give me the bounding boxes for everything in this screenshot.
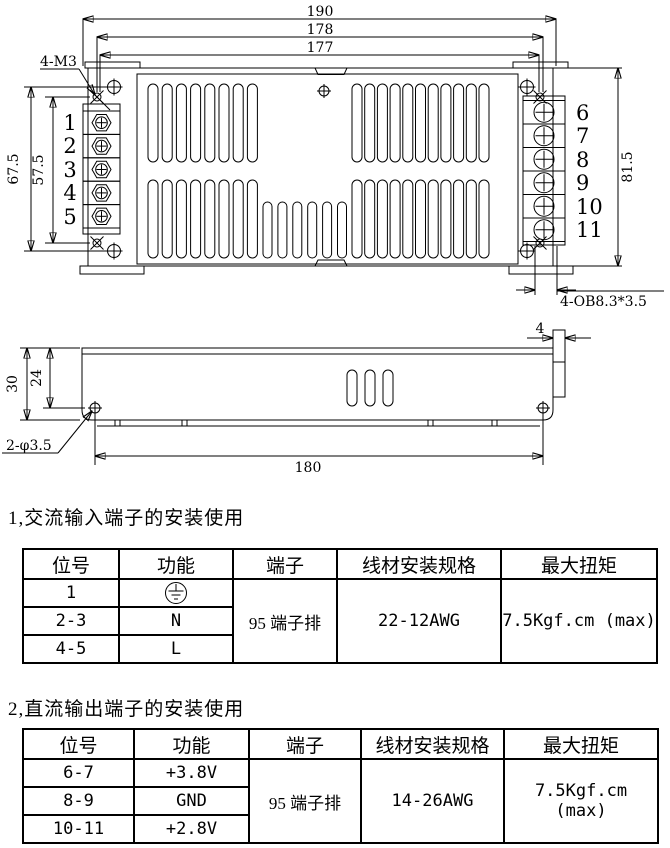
col-header-wire-spec: 线材安装规格 <box>337 549 501 579</box>
cell-function <box>119 579 233 607</box>
input-terminal-numbers: 1 2 3 4 5 <box>63 111 76 229</box>
dim-57-5: 57.5 <box>31 97 90 243</box>
col-header-torque: 最大扭矩 <box>501 549 657 579</box>
cell-position: 10-11 <box>23 815 134 843</box>
cell-position: 8-9 <box>23 787 134 815</box>
col-header-position: 位号 <box>23 549 119 579</box>
col-header-position: 位号 <box>23 729 134 759</box>
cover-screw <box>317 84 331 98</box>
cell-terminal-type: 95 端子排 <box>249 759 361 843</box>
table-row: 6-7 +3.8V 95 端子排 14-26AWG 7.5Kgf.cm (max… <box>23 759 658 787</box>
datasheet-page: 1 2 3 4 5 6 7 8 9 10 11 <box>0 0 670 848</box>
table-row: 1 95 端子排 22-12AWG 7.5Kgf.cm (max) <box>23 579 657 607</box>
vent-slots-top-left <box>148 84 257 162</box>
dc-output-table: 位号 功能 端子 线材安装规格 最大扭矩 6-7 +3.8V 95 端子排 14… <box>22 728 659 844</box>
svg-text:2: 2 <box>63 134 76 158</box>
svg-text:8: 8 <box>576 148 589 172</box>
col-header-function: 功能 <box>119 549 233 579</box>
svg-text:1: 1 <box>63 111 76 135</box>
input-terminal-block <box>83 104 120 234</box>
svg-text:180: 180 <box>295 460 322 476</box>
svg-text:10: 10 <box>576 195 603 219</box>
corner-screws <box>106 79 536 260</box>
svg-text:177: 177 <box>307 40 334 56</box>
svg-text:2-φ3.5: 2-φ3.5 <box>6 438 52 454</box>
cell-torque: 7.5Kgf.cm (max) <box>504 759 658 843</box>
svg-text:5: 5 <box>63 205 76 229</box>
svg-text:81.5: 81.5 <box>620 151 636 182</box>
table-header-row: 位号 功能 端子 线材安装规格 最大扭矩 <box>23 549 657 579</box>
table-header-row: 位号 功能 端子 线材安装规格 最大扭矩 <box>23 729 658 759</box>
cell-function: +2.8V <box>134 815 249 843</box>
side-vent-slots <box>347 370 393 406</box>
cell-function: L <box>119 635 233 663</box>
cell-function: N <box>119 607 233 635</box>
svg-text:190: 190 <box>307 4 334 20</box>
svg-text:7: 7 <box>576 124 589 148</box>
section-ac-heading: 1,交流输入端子的安装使用 <box>8 503 244 530</box>
ac-input-table: 位号 功能 端子 线材安装规格 最大扭矩 1 95 端子排 <box>22 548 658 664</box>
cell-terminal-type: 95 端子排 <box>233 579 337 663</box>
col-header-function: 功能 <box>134 729 249 759</box>
cell-function: GND <box>134 787 249 815</box>
output-terminal-block <box>523 96 565 245</box>
svg-text:11: 11 <box>576 218 603 242</box>
col-header-terminal: 端子 <box>249 729 361 759</box>
svg-text:4: 4 <box>536 321 545 337</box>
svg-text:4: 4 <box>63 181 76 205</box>
top-view-drawing: 1 2 3 4 5 6 7 8 9 10 11 <box>0 0 670 320</box>
label-2-phi-3-5: 2-φ3.5 <box>2 411 92 454</box>
svg-text:24: 24 <box>29 369 45 387</box>
side-mount-holes <box>88 401 550 415</box>
m3-mount-holes <box>91 91 547 250</box>
cell-position: 4-5 <box>23 635 119 663</box>
svg-text:9: 9 <box>576 171 589 195</box>
cell-wire-spec: 14-26AWG <box>361 759 504 843</box>
svg-text:67.5: 67.5 <box>6 153 22 184</box>
vent-slots-top-right <box>352 84 489 162</box>
cell-position: 6-7 <box>23 759 134 787</box>
col-header-wire-spec: 线材安装规格 <box>361 729 504 759</box>
earth-ground-symbol <box>163 580 189 606</box>
section-dc-heading: 2,直流输出端子的安装使用 <box>8 694 244 721</box>
svg-text:3: 3 <box>63 158 76 182</box>
cell-position: 1 <box>23 579 119 607</box>
dim-178: 178 <box>97 22 543 92</box>
svg-text:178: 178 <box>307 22 334 38</box>
side-view-drawing: 30 24 4 2-φ3.5 180 <box>0 320 670 490</box>
vent-slots-bottom-left <box>148 180 257 258</box>
side-chassis-outline <box>82 330 565 426</box>
cell-function: +3.8V <box>134 759 249 787</box>
dim-24: 24 <box>29 348 85 408</box>
label-oblong-hole: 4-OB8.3*3.5 <box>516 246 664 310</box>
svg-text:30: 30 <box>5 375 21 393</box>
cell-torque: 7.5Kgf.cm (max) <box>501 579 657 663</box>
cell-position: 2-3 <box>23 607 119 635</box>
vent-slots-bottom-right <box>352 180 489 258</box>
dim-180: 180 <box>95 413 543 476</box>
chassis-outline <box>80 62 573 274</box>
col-header-torque: 最大扭矩 <box>504 729 658 759</box>
output-terminal-numbers: 6 7 8 9 10 11 <box>576 101 603 242</box>
svg-text:4-OB8.3*3.5: 4-OB8.3*3.5 <box>560 294 647 310</box>
vent-slots-bottom-mid <box>263 202 347 258</box>
svg-text:6: 6 <box>576 101 589 125</box>
svg-text:57.5: 57.5 <box>31 154 47 185</box>
col-header-terminal: 端子 <box>233 549 337 579</box>
cell-wire-spec: 22-12AWG <box>337 579 501 663</box>
svg-text:4-M3: 4-M3 <box>40 54 77 70</box>
